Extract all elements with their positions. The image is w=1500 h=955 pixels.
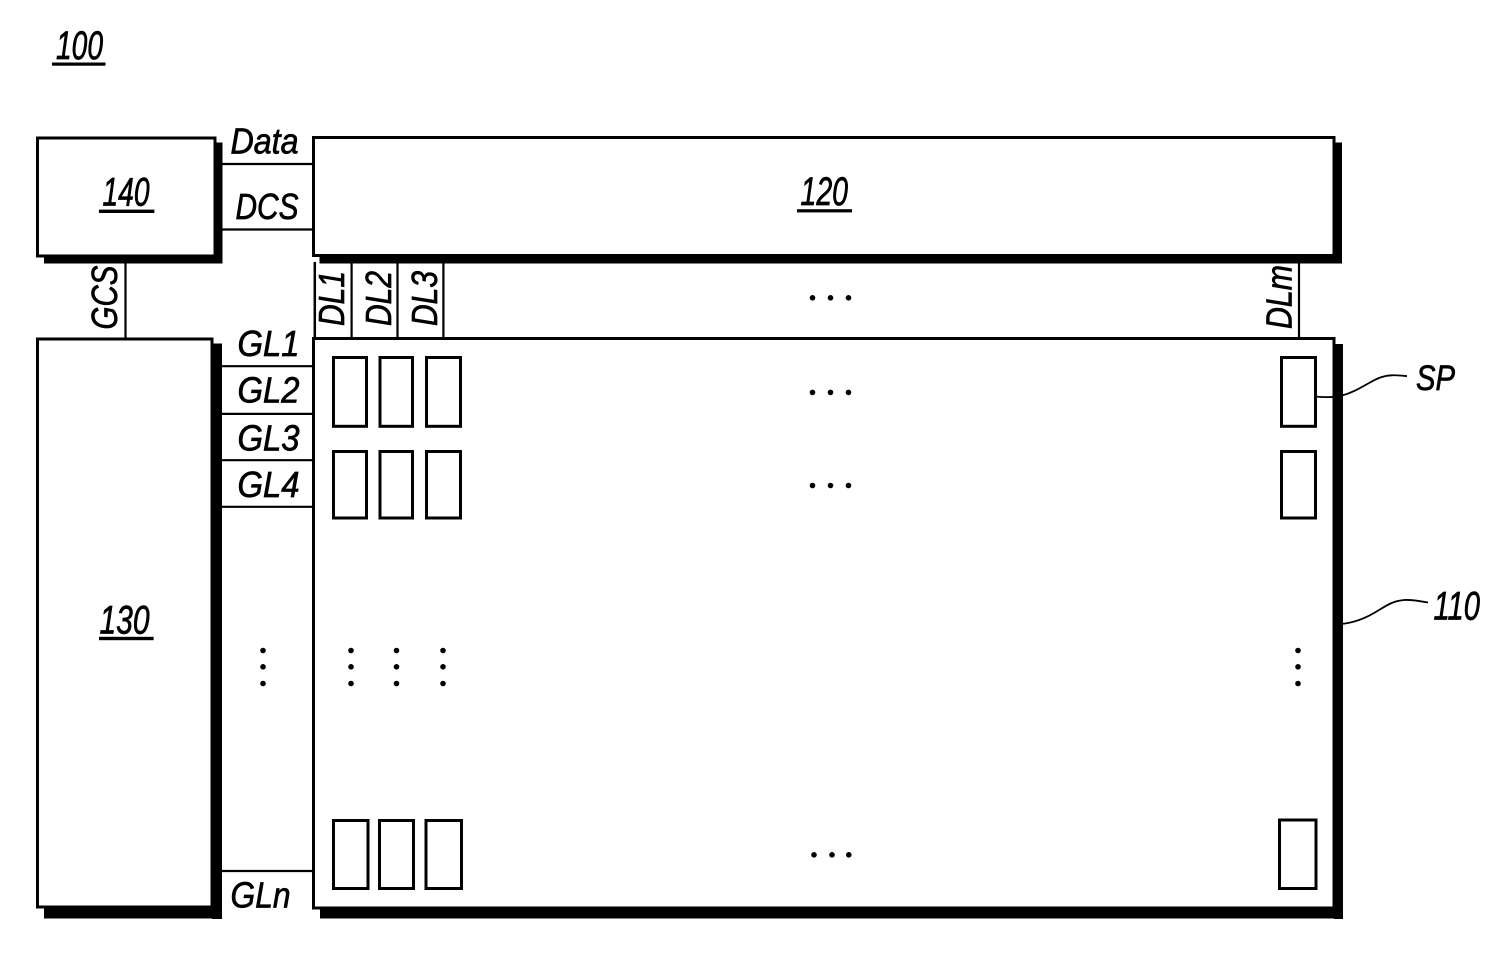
- svg-text:DLm: DLm: [1259, 265, 1300, 329]
- svg-text:GL4: GL4: [238, 464, 300, 505]
- svg-text:DL3: DL3: [404, 271, 445, 326]
- svg-text:DL2: DL2: [358, 271, 399, 326]
- svg-text:GCS: GCS: [84, 266, 125, 330]
- svg-text:SP: SP: [1416, 359, 1456, 398]
- svg-text:GL1: GL1: [238, 323, 300, 364]
- svg-text:120: 120: [801, 170, 849, 214]
- svg-text:140: 140: [103, 171, 150, 215]
- svg-text:110: 110: [1434, 585, 1481, 629]
- svg-text:GL3: GL3: [238, 418, 300, 459]
- svg-text:DCS: DCS: [236, 186, 299, 227]
- svg-text:GLn: GLn: [231, 875, 291, 916]
- svg-text:GL2: GL2: [238, 370, 300, 411]
- svg-text:DL1: DL1: [311, 271, 352, 326]
- svg-text:Data: Data: [231, 121, 299, 162]
- svg-text:130: 130: [100, 599, 150, 643]
- svg-text:100: 100: [56, 24, 103, 68]
